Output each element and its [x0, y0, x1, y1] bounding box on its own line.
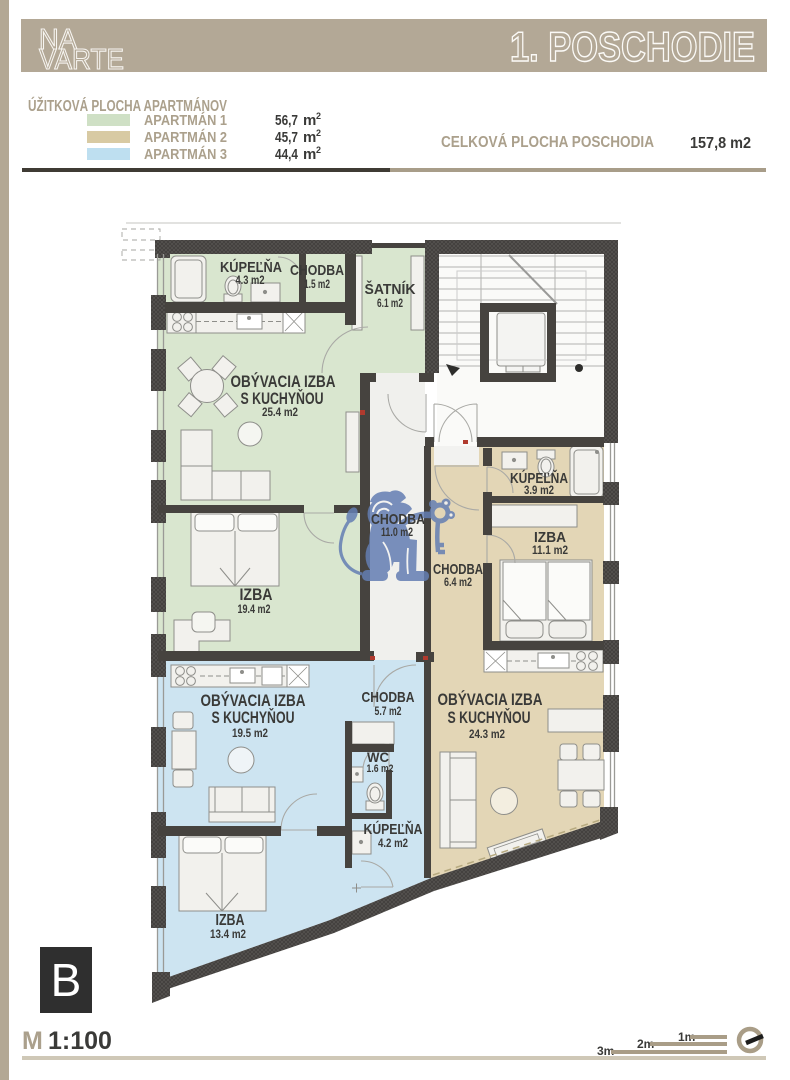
svg-text:KÚPEĽŇA: KÚPEĽŇA [220, 258, 282, 276]
svg-text:4.3 m2: 4.3 m2 [236, 275, 265, 287]
svg-text:m: m [303, 146, 316, 163]
svg-text:1.6 m2: 1.6 m2 [367, 763, 394, 775]
svg-text:4.2 m2: 4.2 m2 [378, 838, 408, 850]
svg-text:OBÝVACIA IZBA: OBÝVACIA IZBA [438, 690, 543, 709]
svg-text:11.1 m2: 11.1 m2 [532, 545, 568, 557]
svg-text:CHODBA: CHODBA [290, 262, 344, 279]
svg-text:25.4 m2: 25.4 m2 [262, 405, 298, 419]
svg-text:19.5 m2: 19.5 m2 [232, 726, 268, 740]
svg-text:45,7: 45,7 [275, 129, 298, 146]
svg-text:2: 2 [316, 111, 321, 121]
svg-text:S KUCHYŇOU: S KUCHYŇOU [448, 708, 531, 727]
svg-text:2: 2 [316, 145, 321, 155]
svg-text:M: M [22, 1027, 43, 1055]
svg-text:CELKOVÁ PLOCHA POSCHODIA: CELKOVÁ PLOCHA POSCHODIA [441, 134, 654, 151]
svg-text:56,7: 56,7 [275, 112, 298, 129]
svg-text:13.4 m2: 13.4 m2 [210, 927, 246, 941]
svg-text:1:100: 1:100 [48, 1027, 112, 1055]
svg-text:3.9 m2: 3.9 m2 [524, 485, 554, 497]
svg-text:1.5 m2: 1.5 m2 [304, 279, 330, 291]
svg-text:IZBA: IZBA [534, 529, 566, 546]
svg-text:KÚPEĽŇA: KÚPEĽŇA [364, 820, 423, 838]
svg-text:ŠATNÍK: ŠATNÍK [365, 280, 416, 298]
svg-text:19.4 m2: 19.4 m2 [238, 602, 271, 616]
svg-text:24.3 m2: 24.3 m2 [469, 727, 505, 741]
svg-text:OBÝVACIA IZBA: OBÝVACIA IZBA [201, 691, 306, 710]
svg-text:APARTMÁN 3: APARTMÁN 3 [144, 146, 227, 163]
svg-text:m: m [303, 112, 316, 129]
svg-text:2: 2 [316, 128, 321, 138]
svg-text:11.0 m2: 11.0 m2 [381, 527, 413, 539]
svg-text:CHODBA: CHODBA [433, 561, 483, 578]
svg-text:5.7 m2: 5.7 m2 [375, 706, 402, 718]
svg-text:44,4: 44,4 [275, 146, 299, 163]
svg-text:CHODBA: CHODBA [362, 689, 415, 706]
svg-text:6.4 m2: 6.4 m2 [444, 577, 472, 589]
svg-text:6.1 m2: 6.1 m2 [377, 298, 403, 310]
svg-text:APARTMÁN 2: APARTMÁN 2 [144, 129, 227, 146]
svg-text:S KUCHYŇOU: S KUCHYŇOU [212, 708, 295, 727]
svg-text:B: B [51, 954, 82, 1006]
svg-text:m: m [303, 129, 316, 146]
svg-text:OBÝVACIA IZBA: OBÝVACIA IZBA [231, 372, 336, 391]
svg-text:APARTMÁN 1: APARTMÁN 1 [144, 112, 227, 129]
svg-text:1. POSCHODIE: 1. POSCHODIE [510, 23, 755, 70]
svg-text:VARTE: VARTE [39, 44, 124, 76]
svg-text:CHODBA: CHODBA [371, 511, 425, 528]
svg-text:157,8 m2: 157,8 m2 [690, 135, 751, 152]
